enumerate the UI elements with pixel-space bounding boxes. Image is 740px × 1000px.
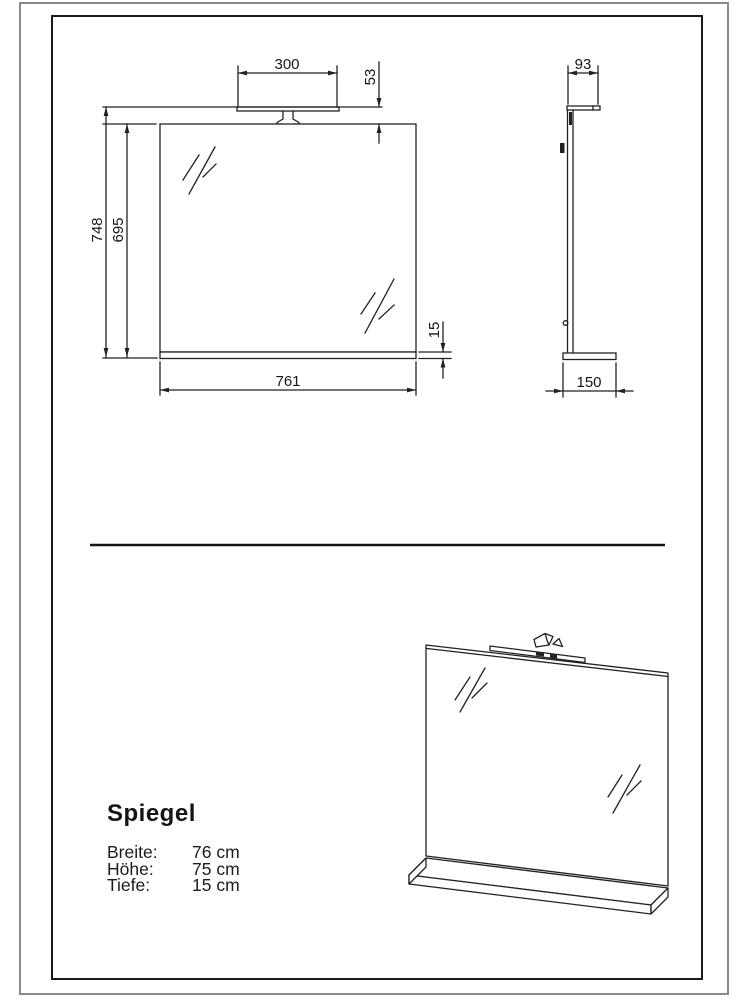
product-info: Spiegel Breite:76 cm Höhe:75 cm Tiefe:15… xyxy=(107,800,196,828)
spec-table: Breite:76 cm Höhe:75 cm Tiefe:15 cm xyxy=(107,844,240,894)
illustration-3d xyxy=(409,634,668,915)
dim-15-label: 15 xyxy=(426,322,443,339)
product-title: Spiegel xyxy=(107,800,196,828)
dim-53-label: 53 xyxy=(362,69,379,86)
front-view: 300 53 748 695 761 15 xyxy=(89,56,451,395)
illus-lamp-bracket-tab xyxy=(553,639,563,647)
shelf-front xyxy=(160,352,416,359)
spec-value-tiefe: 15 cm xyxy=(192,877,240,894)
dim-695-label: 695 xyxy=(110,217,127,242)
illus-mirror-panel xyxy=(426,645,668,886)
illus-lamp-bracket xyxy=(534,634,553,648)
lamp-stem-side xyxy=(569,112,572,125)
side-view: 93 150 xyxy=(546,56,633,397)
shelf-side xyxy=(563,353,616,360)
spec-row-tiefe: Tiefe:15 cm xyxy=(107,877,240,894)
mirror-panel-front xyxy=(160,124,416,352)
wall-bracket xyxy=(560,143,565,153)
lamp-stem-front xyxy=(277,111,299,124)
technical-drawing-page: { "page": { "background": "#ffffff", "li… xyxy=(0,0,740,1000)
dim-300-label: 300 xyxy=(274,56,299,73)
dim-748-label: 748 xyxy=(89,217,106,242)
spec-label-tiefe: Tiefe: xyxy=(107,877,192,894)
dim-761-label: 761 xyxy=(275,373,300,390)
dim-93-label: 93 xyxy=(575,56,592,73)
dim-150-label: 150 xyxy=(576,374,601,391)
lamp-bar-front xyxy=(237,107,339,111)
side-view-arrowheads xyxy=(554,71,625,394)
lamp-bar-side xyxy=(567,106,600,110)
